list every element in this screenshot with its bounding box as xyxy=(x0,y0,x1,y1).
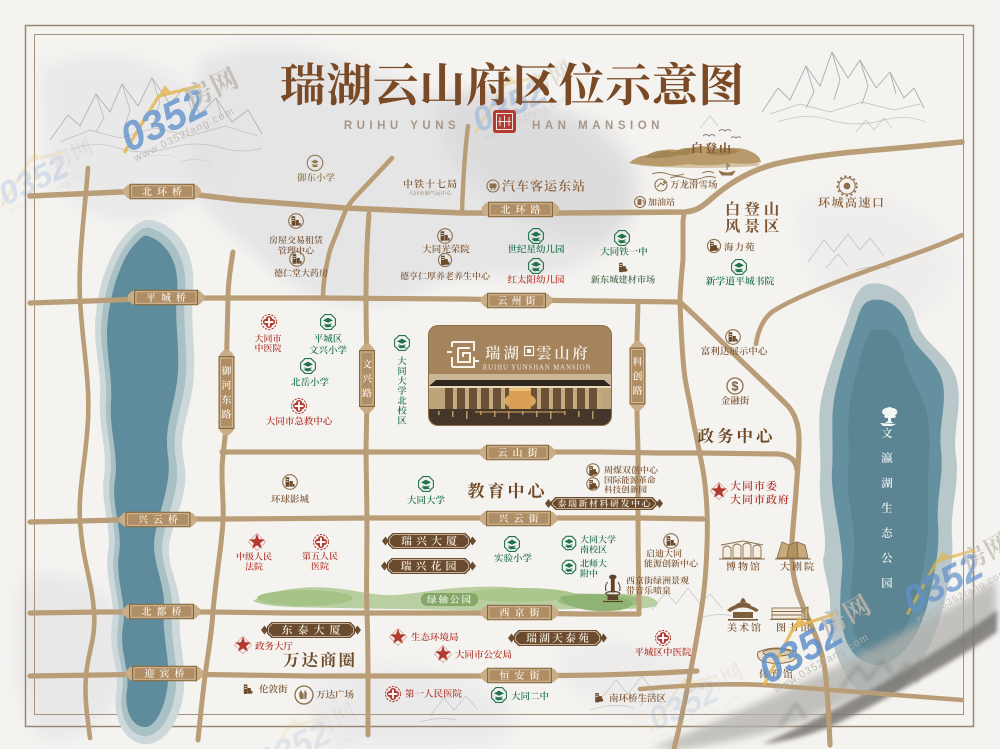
svg-text:$: $ xyxy=(732,380,739,394)
svg-text:RUIHU YUNS: RUIHU YUNS xyxy=(344,120,460,132)
svg-text:HAN MANSION: HAN MANSION xyxy=(532,120,664,132)
svg-text:RUIHU YUNSHAN MANSION: RUIHU YUNSHAN MANSION xyxy=(483,365,592,372)
